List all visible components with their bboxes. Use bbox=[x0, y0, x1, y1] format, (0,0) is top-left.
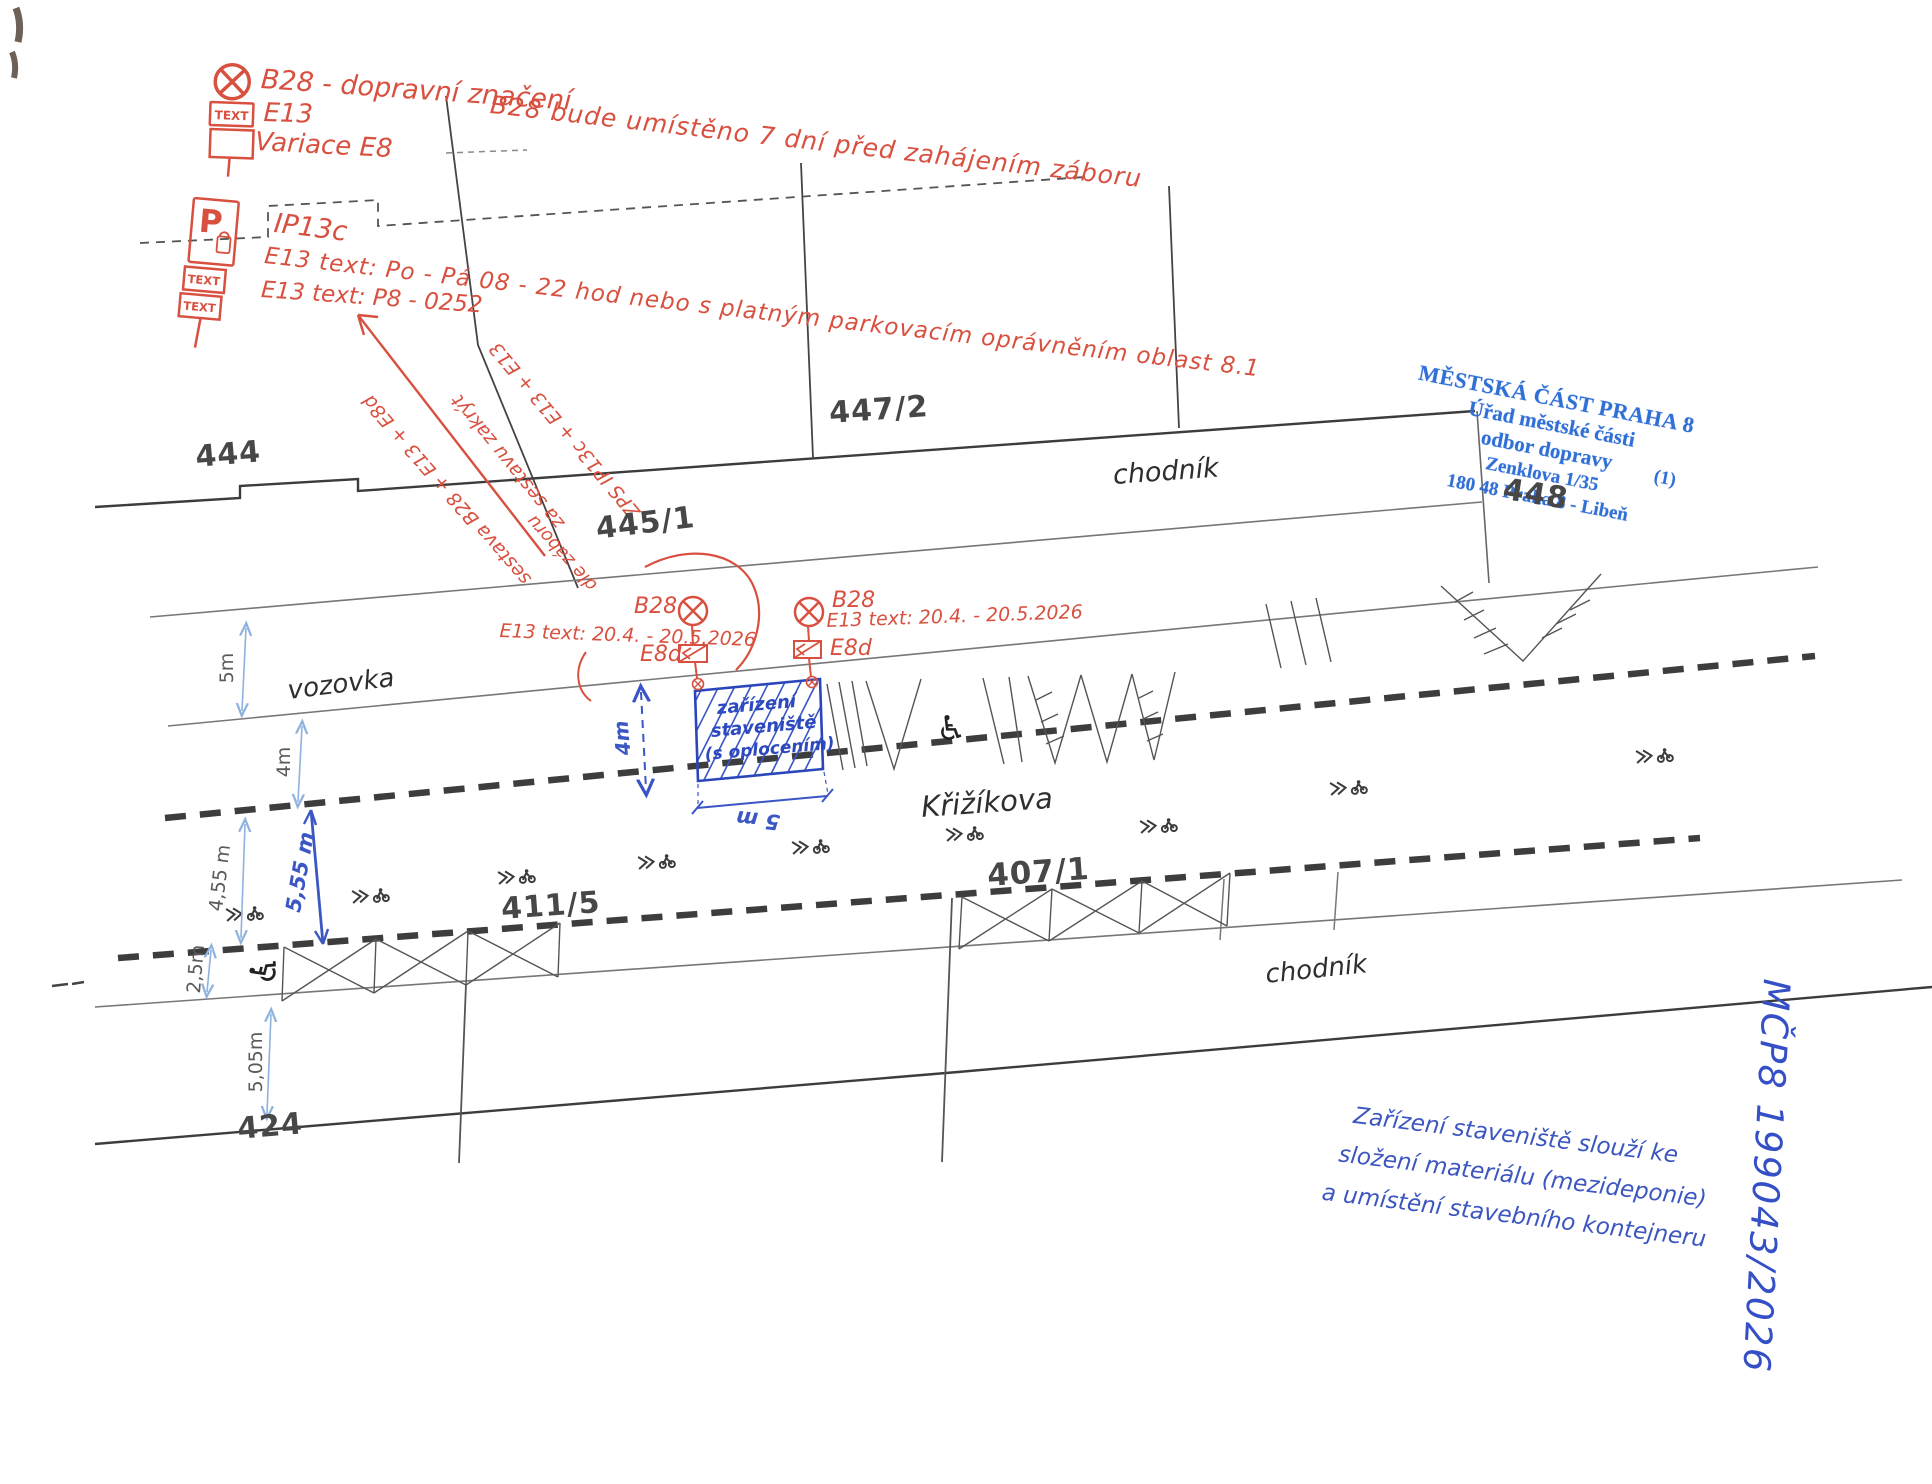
sign-b28-e13-e8-assembly: TEXT bbox=[208, 64, 256, 177]
parcel-407-1: 407/1 bbox=[986, 851, 1091, 894]
wheelchair-icon: ♿ bbox=[241, 949, 289, 991]
street-edge-lines bbox=[52, 502, 1932, 1163]
sharrow-icons bbox=[226, 748, 1673, 922]
sign-b28-mid-2 bbox=[794, 598, 823, 688]
stamp-copy-number: (1) bbox=[1652, 466, 1678, 492]
dim-box-width: 5 m bbox=[735, 806, 781, 834]
wheelchair-icon: ♿ bbox=[936, 709, 966, 749]
parcel-447-2: 447/2 bbox=[828, 389, 930, 431]
dim-sidewalk-bottom: 5,05m bbox=[245, 1032, 267, 1093]
parcel-444: 444 bbox=[194, 434, 262, 475]
e13-plate-label: TEXT bbox=[214, 108, 249, 123]
parcel-411-5: 411/5 bbox=[500, 885, 602, 927]
note-e13: E13 bbox=[263, 98, 314, 130]
sign-ip13c-assembly: P TEXT TEXT bbox=[176, 198, 239, 351]
building-lines bbox=[95, 96, 1489, 588]
scanned-traffic-plan: ♿ ♿ bbox=[0, 0, 1932, 1484]
e8-plate-icon bbox=[210, 129, 254, 158]
e13-plate-label: TEXT bbox=[187, 272, 221, 289]
sign1-e8d: E8d bbox=[640, 642, 682, 667]
e13-plate-label: TEXT bbox=[183, 299, 217, 316]
sign2-e8d: E8d bbox=[830, 636, 872, 661]
dim-box-height: 4m bbox=[609, 720, 636, 757]
dim-parking-lane: 4m bbox=[273, 747, 295, 778]
dim-sidewalk-top: 5m bbox=[216, 653, 238, 684]
parcel-424: 424 bbox=[236, 1106, 304, 1147]
scan-artifacts bbox=[12, 8, 20, 78]
sign1-name: B28 bbox=[634, 594, 677, 619]
wheelchair-icons: ♿ ♿ bbox=[241, 709, 966, 990]
dim-strip: 2,5m bbox=[183, 944, 209, 994]
